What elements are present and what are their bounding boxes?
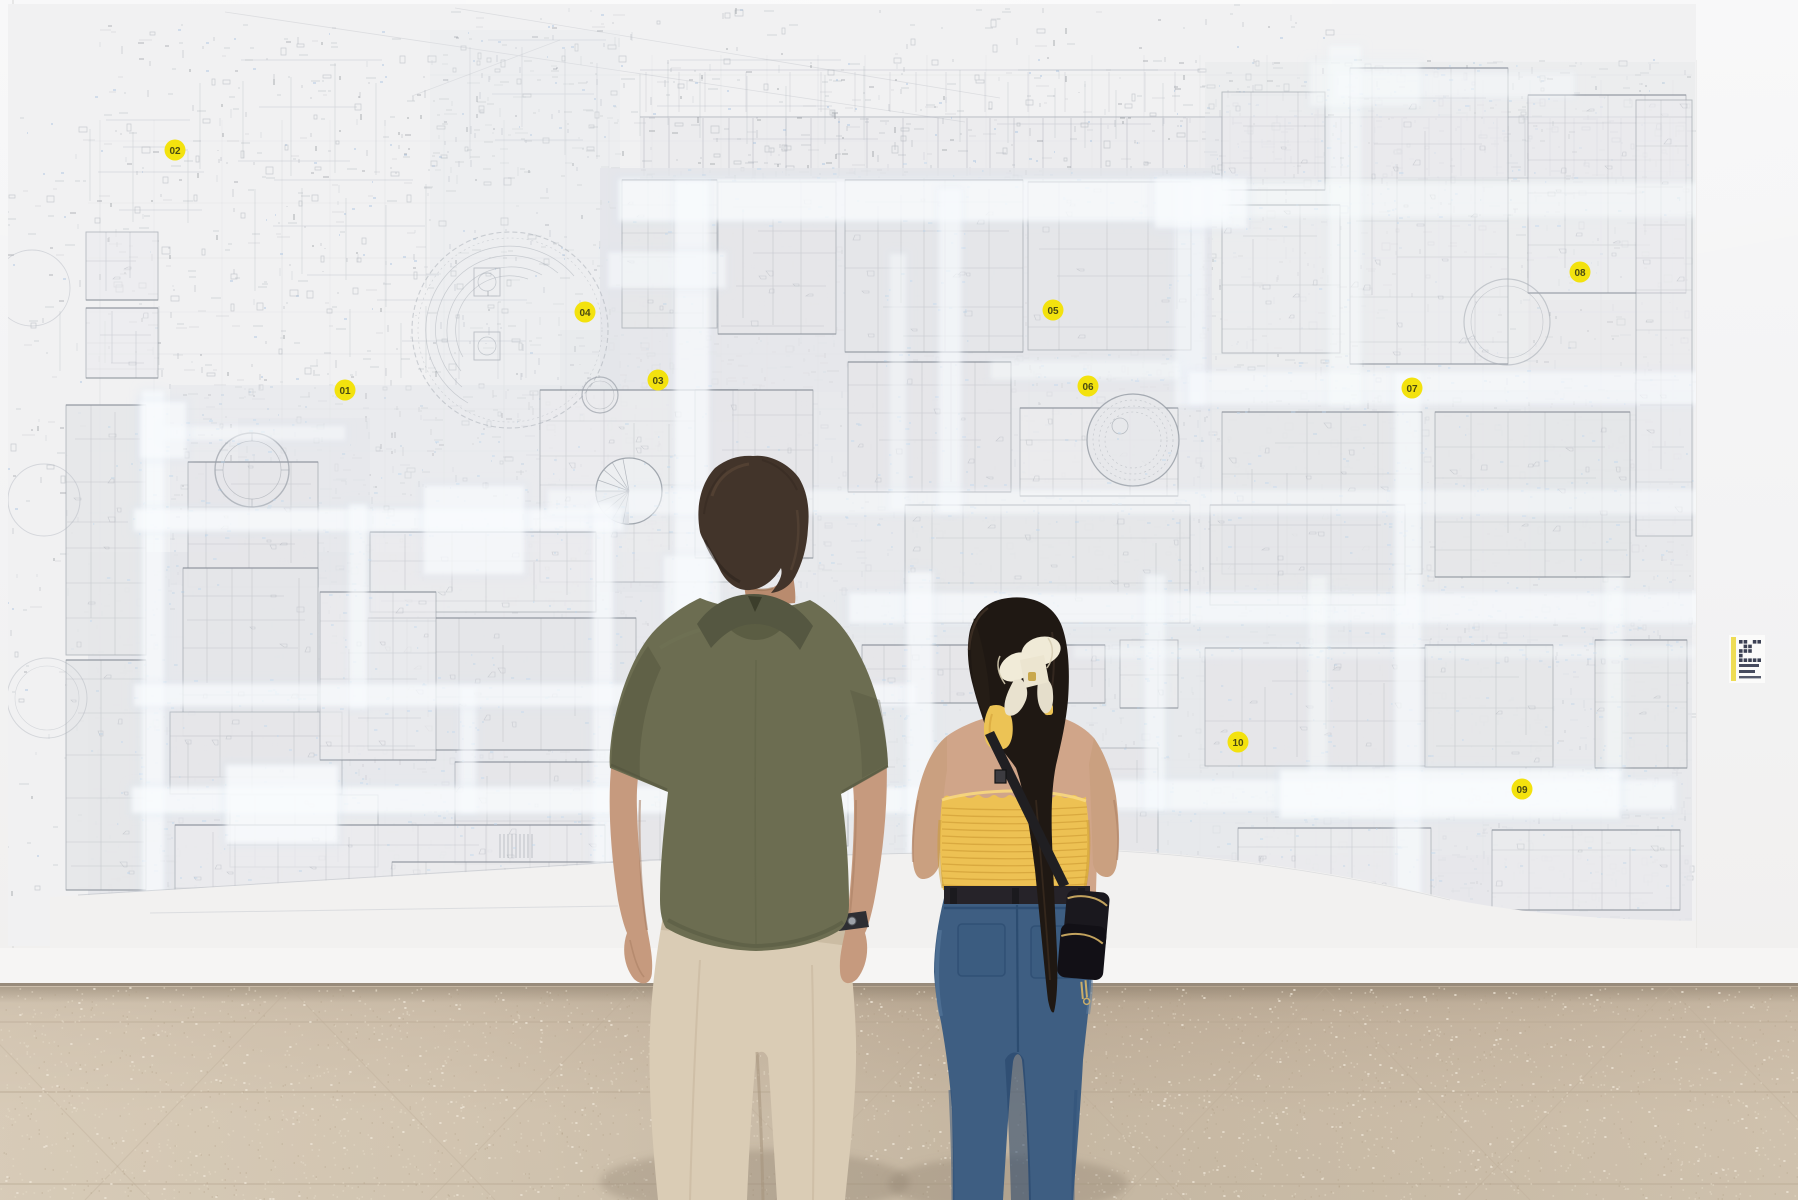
svg-text:05: 05 xyxy=(1047,306,1059,317)
svg-text:04: 04 xyxy=(579,308,591,319)
svg-text:08: 08 xyxy=(1574,268,1586,279)
svg-text:06: 06 xyxy=(1082,382,1094,393)
svg-text:09: 09 xyxy=(1516,785,1528,796)
svg-text:02: 02 xyxy=(169,146,181,157)
svg-text:01: 01 xyxy=(339,386,351,397)
svg-text:10: 10 xyxy=(1232,738,1244,749)
svg-text:03: 03 xyxy=(652,376,664,387)
svg-text:07: 07 xyxy=(1406,384,1418,395)
